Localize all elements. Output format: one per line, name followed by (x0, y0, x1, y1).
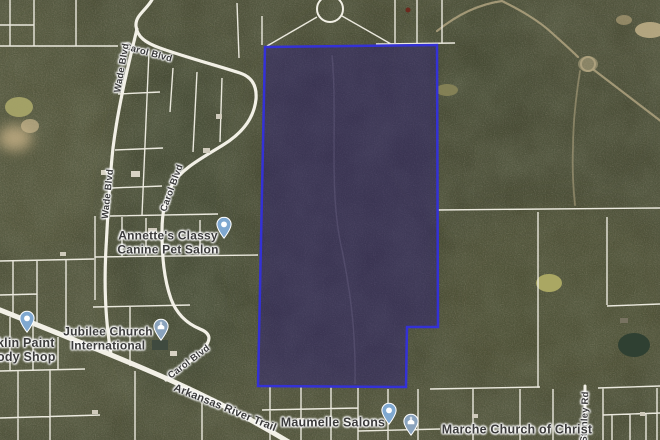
poi-label-jubilee-church[interactable]: Jubilee Church International (63, 326, 152, 353)
poi-label-line: Annette's Classy (117, 230, 218, 244)
church-building (152, 340, 168, 350)
poi-label-line: ody Shop (0, 351, 56, 365)
church-pin-marche[interactable] (403, 413, 420, 436)
poi-label-line: klin Paint (0, 337, 56, 351)
place-pin-maumelle-salons[interactable] (381, 402, 398, 425)
dark-pond (618, 333, 650, 357)
pond (536, 274, 562, 292)
poi-label-maumelle-salons[interactable]: Maumelle Salons (281, 416, 385, 430)
place-pin-paint-body-shop[interactable] (19, 310, 36, 333)
poi-label-marche-church[interactable]: Marche Church of Christ (442, 423, 592, 437)
poi-label-line: International (63, 339, 152, 353)
place-pin-annettes[interactable] (216, 216, 233, 239)
poi-label-line: Jubilee Church (63, 326, 152, 340)
poi-label-line: Canine Pet Salon (117, 243, 218, 257)
map-imagery (0, 0, 660, 440)
poi-label-paint-body-shop[interactable]: klin Paint ody Shop (0, 337, 56, 364)
church-pin-jubilee[interactable] (153, 318, 170, 341)
poi-label-annettes-pet-salon[interactable]: Annette's Classy Canine Pet Salon (117, 230, 218, 257)
pond (5, 97, 33, 117)
satellite-map-canvas[interactable]: Carol Blvd Wade Blvd Wade Blvd Carol Blv… (0, 0, 660, 440)
